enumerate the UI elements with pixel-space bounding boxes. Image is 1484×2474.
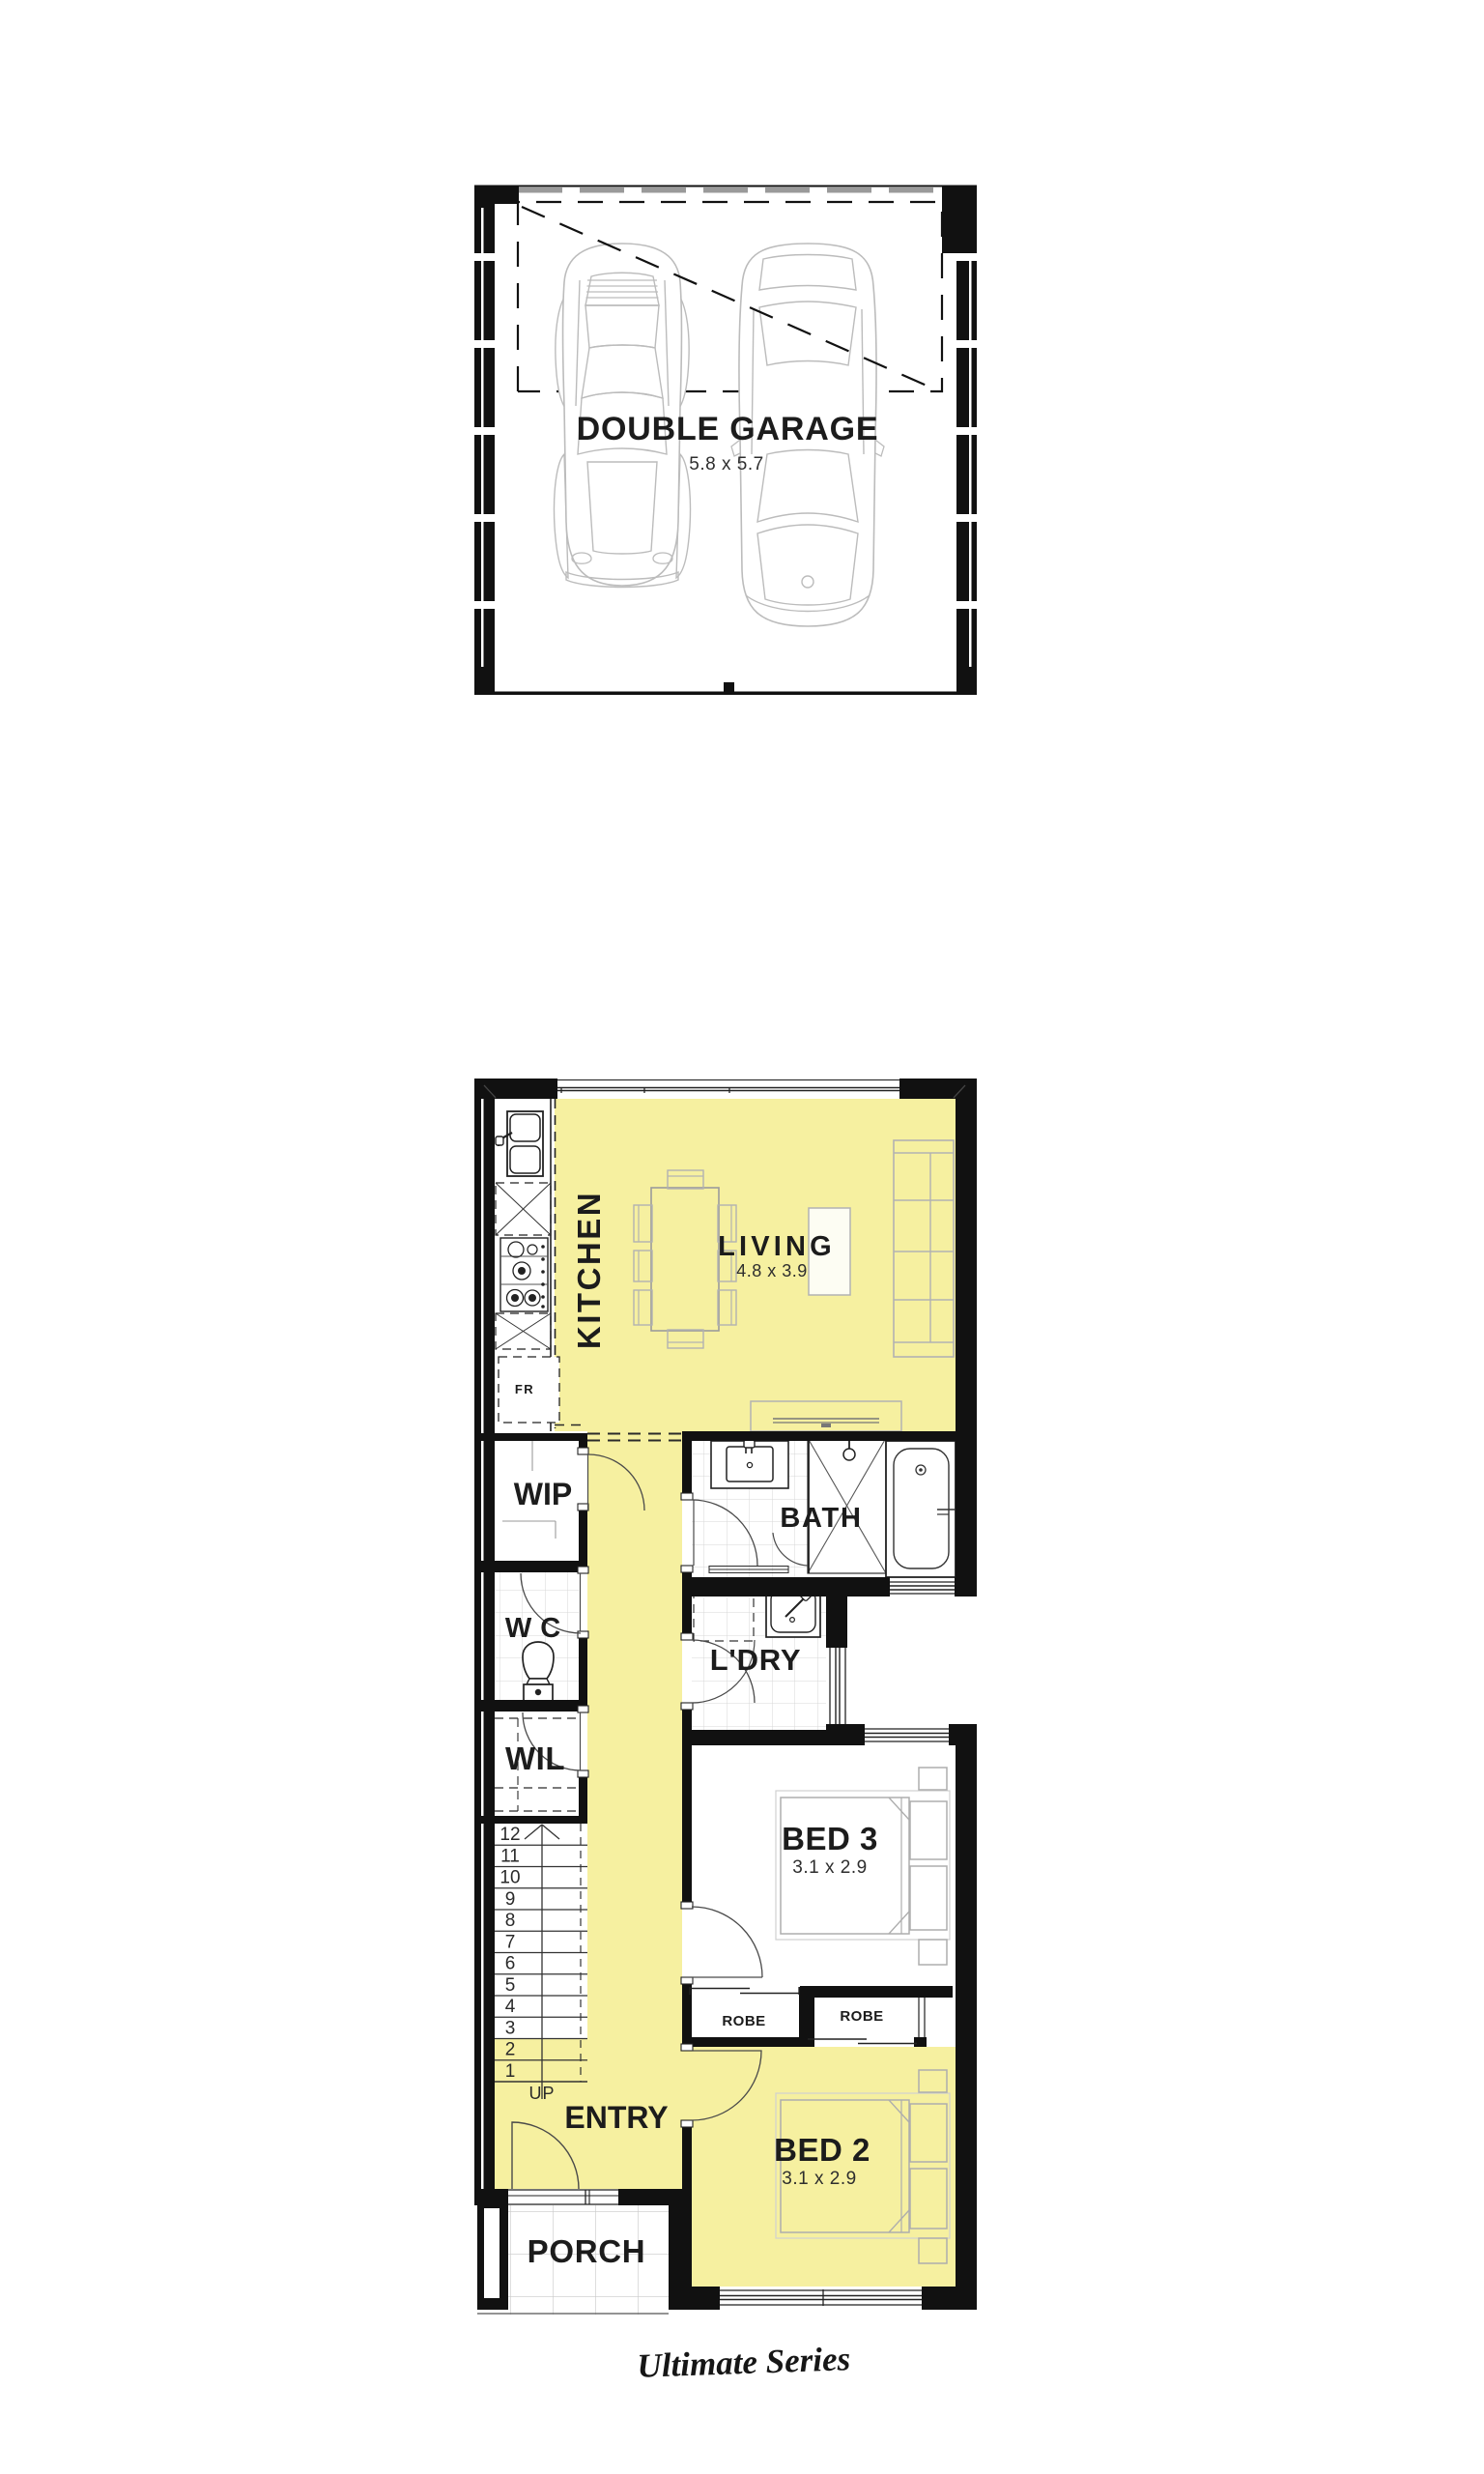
svg-text:3.1 x 2.9: 3.1 x 2.9 bbox=[792, 1857, 867, 1878]
svg-text:11: 11 bbox=[500, 1846, 520, 1866]
svg-text:LIVING: LIVING bbox=[718, 1231, 836, 1262]
svg-text:4.8 x 3.9: 4.8 x 3.9 bbox=[736, 1261, 808, 1280]
svg-text:ENTRY: ENTRY bbox=[564, 2100, 668, 2135]
svg-text:5.8 x 5.7: 5.8 x 5.7 bbox=[689, 454, 763, 475]
svg-text:BED 2: BED 2 bbox=[774, 2132, 870, 2168]
svg-text:KITCHEN: KITCHEN bbox=[571, 1191, 607, 1349]
svg-text:8: 8 bbox=[505, 1911, 516, 1931]
svg-text:5: 5 bbox=[505, 1975, 516, 1996]
svg-text:3.1 x 2.9: 3.1 x 2.9 bbox=[782, 2169, 856, 2189]
svg-text:BATH: BATH bbox=[780, 1503, 862, 1534]
svg-text:10: 10 bbox=[499, 1868, 520, 1888]
svg-text:ROBE: ROBE bbox=[840, 2008, 883, 2025]
svg-text:6: 6 bbox=[505, 1954, 516, 1974]
svg-text:9: 9 bbox=[505, 1889, 516, 1910]
svg-text:UP: UP bbox=[528, 2084, 555, 2103]
svg-text:4: 4 bbox=[505, 1997, 516, 2017]
svg-text:DOUBLE GARAGE: DOUBLE GARAGE bbox=[577, 411, 879, 447]
svg-text:Ultimate Series: Ultimate Series bbox=[637, 2340, 851, 2385]
svg-text:WIL: WIL bbox=[505, 1740, 565, 1776]
svg-text:PORCH: PORCH bbox=[528, 2233, 646, 2269]
svg-text:7: 7 bbox=[505, 1932, 516, 1952]
svg-text:12: 12 bbox=[499, 1825, 520, 1845]
svg-text:3: 3 bbox=[505, 2018, 516, 2038]
svg-text:WC: WC bbox=[505, 1613, 569, 1644]
svg-text:1: 1 bbox=[505, 2061, 516, 2082]
svg-text:FR: FR bbox=[515, 1382, 534, 1396]
svg-text:L'DRY: L'DRY bbox=[710, 1643, 802, 1677]
svg-text:BED 3: BED 3 bbox=[782, 1821, 878, 1856]
svg-text:2: 2 bbox=[505, 2040, 516, 2060]
svg-text:ROBE: ROBE bbox=[722, 2013, 765, 2029]
svg-text:WIP: WIP bbox=[514, 1477, 572, 1511]
